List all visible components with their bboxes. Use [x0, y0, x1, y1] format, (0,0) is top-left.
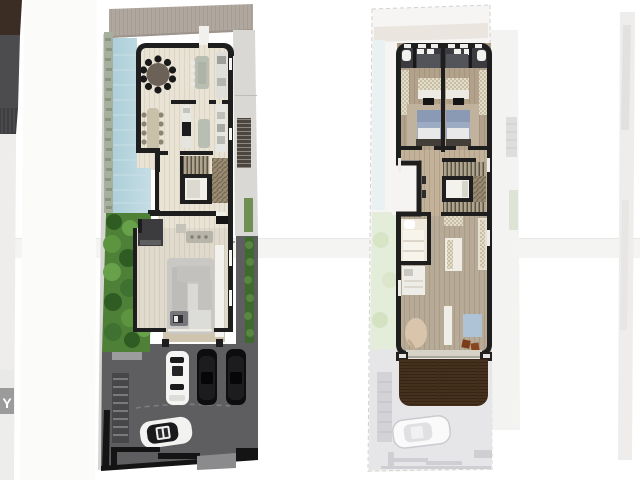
svg-text:Y: Y — [2, 395, 12, 411]
